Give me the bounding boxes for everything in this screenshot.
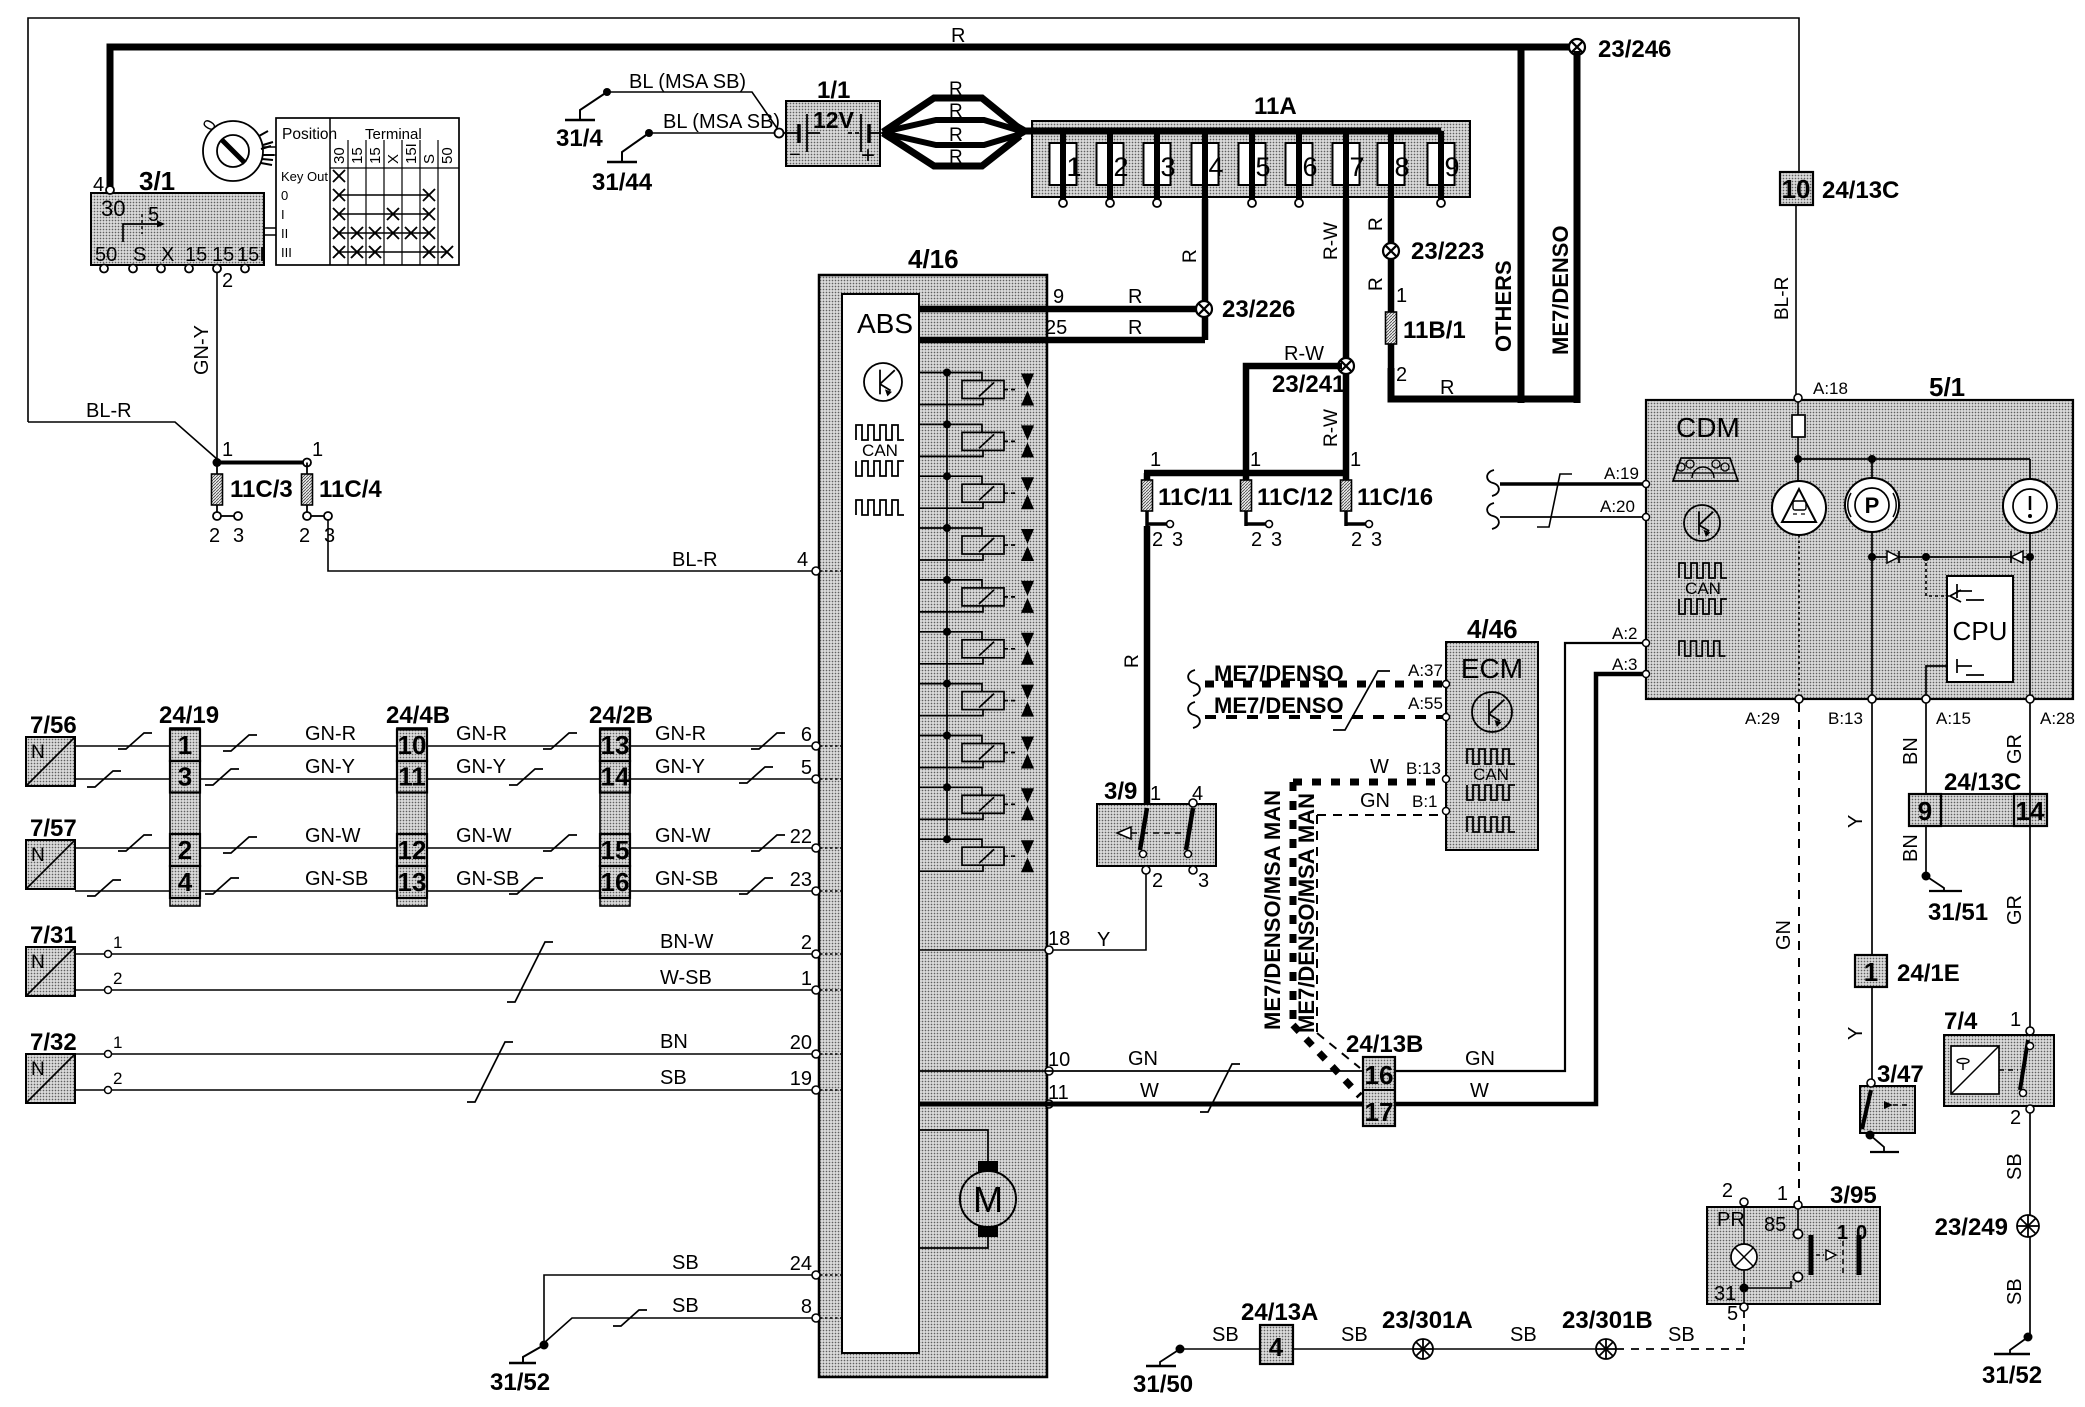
svg-text:10: 10: [398, 730, 427, 760]
svg-text:BL-R: BL-R: [1772, 277, 1793, 320]
svg-text:R: R: [949, 101, 963, 122]
svg-text:85: 85: [1764, 1214, 1786, 1236]
svg-text:A:37: A:37: [1408, 661, 1443, 680]
svg-text:11C/16: 11C/16: [1357, 484, 1433, 511]
svg-text:A:29: A:29: [1745, 709, 1780, 728]
svg-text:24: 24: [790, 1253, 812, 1275]
svg-text:10: 10: [1782, 174, 1811, 204]
svg-text:A:20: A:20: [1600, 497, 1635, 516]
svg-text:N: N: [31, 952, 45, 973]
svg-text:N: N: [31, 845, 45, 866]
svg-text:A:19: A:19: [1604, 464, 1639, 483]
svg-text:R: R: [1180, 249, 1201, 263]
svg-text:1: 1: [801, 968, 812, 990]
svg-text:1: 1: [178, 730, 192, 760]
svg-text:A:55: A:55: [1408, 694, 1443, 713]
svg-text:5/1: 5/1: [1929, 372, 1965, 402]
svg-text:1: 1: [222, 439, 233, 461]
svg-text:1: 1: [2010, 1009, 2021, 1031]
svg-text:1: 1: [1350, 449, 1361, 471]
svg-text:23/249: 23/249: [1935, 1214, 2008, 1241]
svg-text:SB: SB: [2004, 1278, 2026, 1305]
svg-text:3: 3: [1371, 529, 1382, 551]
svg-text:3: 3: [1172, 529, 1183, 551]
svg-text:BL-R: BL-R: [672, 549, 718, 571]
svg-text:SB: SB: [672, 1295, 699, 1317]
svg-text:23/301B: 23/301B: [1562, 1307, 1653, 1334]
svg-text:GN: GN: [1465, 1048, 1495, 1070]
svg-text:23/226: 23/226: [1222, 296, 1295, 323]
svg-text:11C/4: 11C/4: [319, 476, 382, 503]
svg-text:2: 2: [222, 270, 233, 292]
svg-text:5: 5: [801, 757, 812, 779]
svg-text:GR: GR: [2004, 895, 2026, 925]
svg-text:9: 9: [1918, 796, 1932, 826]
svg-text:S: S: [421, 154, 438, 164]
svg-text:13: 13: [398, 867, 427, 897]
svg-text:3/9: 3/9: [1104, 778, 1137, 805]
svg-text:31/4: 31/4: [556, 125, 603, 152]
svg-text:23/301A: 23/301A: [1382, 1307, 1473, 1334]
svg-text:I: I: [281, 207, 285, 222]
svg-text:13: 13: [601, 730, 630, 760]
svg-text:6: 6: [1303, 152, 1318, 182]
svg-text:BL-R: BL-R: [86, 400, 132, 422]
svg-text:GN-Y: GN-Y: [456, 756, 506, 778]
svg-text:CPU: CPU: [1953, 616, 2008, 646]
svg-text:2: 2: [113, 969, 122, 988]
svg-text:19: 19: [790, 1068, 812, 1090]
svg-text:3: 3: [1271, 529, 1282, 551]
svg-text:15: 15: [349, 147, 366, 164]
svg-text:GR: GR: [2004, 734, 2026, 764]
svg-text:10: 10: [1048, 1049, 1070, 1071]
svg-text:4/46: 4/46: [1467, 614, 1518, 644]
svg-text:24/4B: 24/4B: [386, 702, 450, 729]
svg-text:R: R: [1128, 317, 1142, 339]
svg-text:22: 22: [790, 826, 812, 848]
svg-text:GN-Y: GN-Y: [655, 756, 705, 778]
svg-text:GN-R: GN-R: [305, 723, 356, 745]
svg-text:2: 2: [1722, 1180, 1733, 1202]
svg-text:1: 1: [1396, 285, 1407, 307]
svg-text:30: 30: [101, 196, 125, 221]
svg-text:B:1: B:1: [1412, 792, 1438, 811]
svg-text:W: W: [1140, 1080, 1159, 1102]
svg-text:R: R: [1366, 277, 1387, 291]
svg-text:11C/3: 11C/3: [230, 476, 293, 503]
svg-text:12V: 12V: [813, 107, 855, 133]
svg-text:15: 15: [212, 244, 234, 266]
svg-text:R: R: [1128, 286, 1142, 308]
svg-text:A:2: A:2: [1612, 624, 1638, 643]
svg-text:N: N: [31, 742, 45, 763]
svg-text:31/51: 31/51: [1928, 899, 1988, 926]
svg-text:11C/11: 11C/11: [1158, 484, 1233, 511]
svg-text:50: 50: [439, 147, 456, 164]
svg-text:15I: 15I: [237, 244, 265, 266]
svg-text:3/1: 3/1: [139, 166, 175, 196]
svg-text:31/52: 31/52: [1982, 1362, 2042, 1389]
svg-text:24/19: 24/19: [159, 702, 219, 729]
svg-text:GN-R: GN-R: [456, 723, 507, 745]
svg-text:24/13C: 24/13C: [1822, 177, 1899, 204]
svg-text:GN-SB: GN-SB: [456, 868, 519, 890]
svg-text:15: 15: [601, 835, 630, 865]
svg-text:15: 15: [367, 147, 384, 164]
svg-text:1: 1: [1777, 1183, 1788, 1205]
svg-text:3: 3: [1198, 870, 1209, 892]
svg-text:ME7/DENSO: ME7/DENSO: [1214, 693, 1344, 718]
svg-text:3: 3: [178, 762, 192, 792]
svg-text:SB: SB: [1341, 1324, 1368, 1346]
svg-text:20: 20: [790, 1032, 812, 1054]
svg-text:ABS: ABS: [857, 308, 913, 339]
svg-text:31/50: 31/50: [1133, 1371, 1193, 1398]
svg-text:W: W: [1370, 756, 1389, 778]
svg-text:+: +: [861, 142, 875, 169]
svg-text:R-W: R-W: [1321, 222, 1342, 260]
svg-text:7/4: 7/4: [1944, 1008, 1978, 1035]
svg-text:1: 1: [1864, 957, 1878, 987]
svg-text:III: III: [281, 245, 292, 260]
svg-text:4: 4: [178, 867, 193, 897]
svg-text:3: 3: [324, 525, 335, 547]
svg-text:5: 5: [148, 204, 159, 226]
svg-text:X: X: [161, 244, 174, 266]
svg-text:R: R: [1122, 654, 1143, 668]
svg-text:24/2B: 24/2B: [589, 702, 653, 729]
svg-text:ME7/DENSO: ME7/DENSO: [1548, 225, 1573, 355]
svg-text:3/95: 3/95: [1830, 1182, 1877, 1209]
svg-text:GN: GN: [1773, 920, 1795, 950]
svg-text:Y: Y: [1845, 815, 1867, 828]
svg-text:−: −: [789, 144, 801, 166]
svg-text:23: 23: [790, 869, 812, 891]
svg-text:II: II: [281, 226, 288, 241]
svg-text:15: 15: [185, 244, 207, 266]
svg-text:ME7/DENSO/MSA MAN: ME7/DENSO/MSA MAN: [1260, 790, 1285, 1030]
svg-text:N: N: [31, 1059, 45, 1080]
svg-text:1: 1: [113, 1033, 122, 1052]
svg-text:2: 2: [1114, 152, 1129, 182]
svg-text:4: 4: [797, 549, 808, 571]
svg-text:CDM: CDM: [1676, 412, 1740, 443]
svg-text:11C/12: 11C/12: [1257, 484, 1333, 511]
svg-text:W: W: [1470, 1080, 1489, 1102]
svg-text:R-W: R-W: [1321, 409, 1342, 447]
svg-text:BN: BN: [1900, 737, 1922, 765]
svg-text:OTHERS: OTHERS: [1491, 260, 1516, 352]
svg-text:B:13: B:13: [1406, 759, 1441, 778]
svg-text:R: R: [1440, 377, 1454, 399]
svg-text:7/57: 7/57: [30, 815, 77, 842]
svg-text:3: 3: [1161, 152, 1176, 182]
svg-text:30: 30: [331, 147, 348, 164]
svg-text:1: 1: [113, 933, 122, 952]
svg-text:1: 1: [1250, 449, 1261, 471]
svg-text:GN-SB: GN-SB: [305, 868, 368, 890]
svg-text:Position: Position: [282, 126, 337, 143]
svg-text:7/31: 7/31: [30, 922, 77, 949]
svg-text:Y: Y: [1097, 929, 1110, 951]
svg-text:ECM: ECM: [1461, 653, 1523, 684]
svg-text:CAN: CAN: [862, 441, 898, 460]
svg-text:31/44: 31/44: [592, 169, 653, 196]
svg-text:X: X: [385, 154, 402, 164]
svg-text:R: R: [1366, 217, 1387, 231]
svg-text:5: 5: [1256, 152, 1271, 182]
svg-text:BL (MSA SB): BL (MSA SB): [663, 111, 780, 133]
svg-text:SB: SB: [2004, 1153, 2026, 1180]
svg-text:GN: GN: [1360, 790, 1390, 812]
svg-text:9: 9: [1445, 152, 1460, 182]
svg-text:2: 2: [1351, 529, 1362, 551]
svg-text:2: 2: [1152, 529, 1163, 551]
svg-text:3/47: 3/47: [1877, 1061, 1924, 1088]
svg-text:2: 2: [2010, 1107, 2021, 1129]
svg-text:50: 50: [95, 244, 117, 266]
svg-text:1: 1: [1150, 449, 1161, 471]
svg-text:BL (MSA SB): BL (MSA SB): [629, 71, 746, 93]
svg-text:PR: PR: [1717, 1209, 1745, 1231]
svg-text:1/1: 1/1: [817, 77, 850, 104]
svg-text:23/246: 23/246: [1598, 36, 1671, 63]
svg-text:11: 11: [398, 762, 426, 792]
svg-text:23/223: 23/223: [1411, 238, 1484, 265]
svg-text:2: 2: [209, 525, 220, 547]
svg-text:11A: 11A: [1254, 93, 1297, 120]
svg-text:1: 1: [312, 439, 323, 461]
svg-text:P: P: [1865, 493, 1880, 518]
svg-text:2: 2: [801, 932, 812, 954]
svg-text:24/13C: 24/13C: [1944, 769, 2021, 796]
svg-text:3: 3: [233, 525, 244, 547]
svg-text:BN: BN: [1900, 834, 1922, 862]
svg-text:7: 7: [1350, 152, 1365, 182]
svg-text:1: 1: [1837, 1222, 1848, 1244]
svg-text:BN-W: BN-W: [660, 931, 713, 953]
svg-text:1: 1: [1150, 783, 1161, 805]
svg-text:SB: SB: [1510, 1324, 1537, 1346]
svg-text:GN-R: GN-R: [655, 723, 706, 745]
svg-text:24/13A: 24/13A: [1241, 1299, 1318, 1326]
svg-text:BN: BN: [660, 1031, 688, 1053]
svg-text:15I: 15I: [403, 143, 420, 164]
svg-text:GN-W: GN-W: [655, 825, 711, 847]
svg-text:SB: SB: [1212, 1324, 1239, 1346]
svg-text:7/56: 7/56: [30, 712, 77, 739]
svg-text:ME7/DENSO/MSA MAN: ME7/DENSO/MSA MAN: [1294, 793, 1319, 1033]
svg-text:M: M: [973, 1179, 1003, 1220]
svg-text:SB: SB: [1668, 1324, 1695, 1346]
svg-text:R: R: [951, 25, 965, 47]
svg-text:17: 17: [1365, 1097, 1394, 1127]
svg-text:4/16: 4/16: [908, 244, 959, 274]
svg-text:0: 0: [1856, 1222, 1867, 1244]
svg-text:7/32: 7/32: [30, 1029, 77, 1056]
svg-text:A:3: A:3: [1612, 655, 1638, 674]
svg-text:2: 2: [1251, 529, 1262, 551]
svg-text:Key Out: Key Out: [281, 169, 328, 184]
svg-text:16: 16: [601, 867, 630, 897]
svg-text:11: 11: [1048, 1082, 1069, 1104]
svg-text:31: 31: [1714, 1283, 1736, 1305]
svg-text:2: 2: [113, 1069, 122, 1088]
svg-text:B:13: B:13: [1828, 709, 1863, 728]
svg-text:31/52: 31/52: [490, 1369, 550, 1396]
svg-text:Terminal: Terminal: [365, 126, 422, 143]
svg-text:Y: Y: [1845, 1027, 1867, 1040]
svg-text:4: 4: [1209, 152, 1224, 182]
svg-text:2: 2: [178, 835, 192, 865]
svg-text:GN-W: GN-W: [305, 825, 361, 847]
svg-text:25: 25: [1045, 317, 1067, 339]
svg-text:9: 9: [1053, 286, 1064, 308]
svg-text:2: 2: [299, 525, 310, 547]
svg-text:GN-W: GN-W: [456, 825, 512, 847]
svg-text:2: 2: [1152, 870, 1163, 892]
svg-text:11B/1: 11B/1: [1403, 317, 1466, 344]
svg-text:0: 0: [281, 188, 288, 203]
svg-text:8: 8: [801, 1296, 812, 1318]
svg-text:24/1E: 24/1E: [1897, 960, 1960, 987]
svg-text:GN-Y: GN-Y: [191, 325, 213, 375]
svg-text:12: 12: [398, 835, 427, 865]
svg-text:1: 1: [1067, 152, 1082, 182]
svg-text:SB: SB: [660, 1067, 687, 1089]
svg-text:A:15: A:15: [1936, 709, 1971, 728]
svg-text:GN: GN: [1128, 1048, 1158, 1070]
svg-text:CAN: CAN: [1685, 579, 1721, 598]
svg-text:SB: SB: [672, 1252, 699, 1274]
svg-text:R: R: [949, 125, 963, 146]
svg-text:A:28: A:28: [2040, 709, 2075, 728]
svg-text:24/13B: 24/13B: [1346, 1031, 1423, 1058]
svg-text:14: 14: [601, 762, 630, 792]
svg-text:R: R: [949, 79, 963, 100]
svg-text:23/241: 23/241: [1272, 371, 1345, 398]
svg-text:W-SB: W-SB: [660, 967, 712, 989]
svg-text:8: 8: [1395, 152, 1410, 182]
svg-text:GN-Y: GN-Y: [305, 756, 355, 778]
svg-text:6: 6: [801, 724, 812, 746]
svg-text:4: 4: [1269, 1332, 1284, 1362]
svg-text:CAN: CAN: [1473, 765, 1509, 784]
svg-text:16: 16: [1365, 1060, 1394, 1090]
svg-text:5: 5: [1727, 1303, 1738, 1325]
svg-text:2: 2: [1396, 364, 1407, 386]
svg-text:S: S: [133, 244, 146, 266]
svg-text:GN-SB: GN-SB: [655, 868, 718, 890]
svg-text:R-W: R-W: [1284, 343, 1324, 365]
svg-text:R: R: [949, 147, 963, 168]
svg-text:A:18: A:18: [1813, 379, 1848, 398]
